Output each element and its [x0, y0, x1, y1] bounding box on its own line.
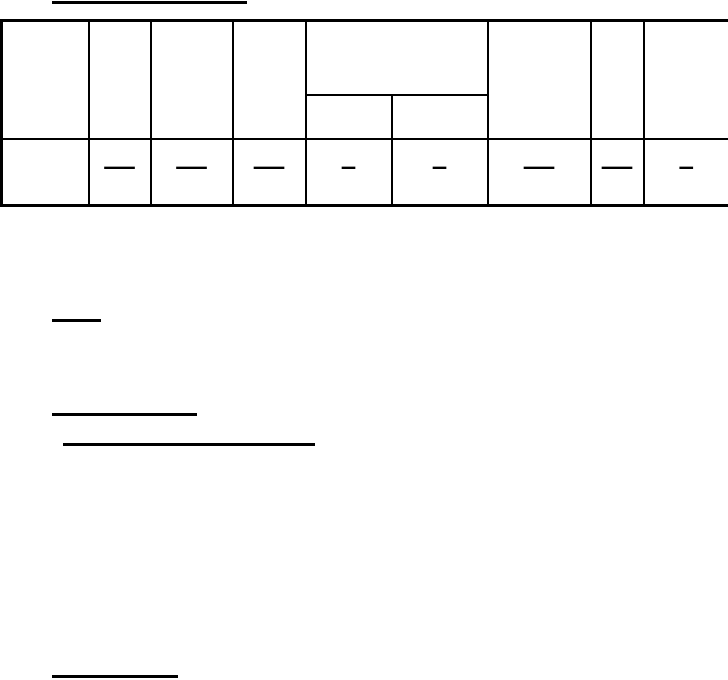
header-cell-col7: [591, 21, 644, 139]
header-cell-col6: [488, 21, 591, 139]
data-cell-col8: –: [644, 139, 728, 206]
table-body: — — — – – — — –: [2, 139, 728, 206]
header-row-1: [2, 21, 728, 95]
underline-rule: [52, 319, 101, 322]
data-table: — — — – – — — –: [0, 19, 728, 207]
data-cell-col3: —: [151, 139, 233, 206]
underline-rule: [52, 675, 178, 678]
data-cell-col2: —: [89, 139, 151, 206]
data-cell-col4: —: [233, 139, 306, 206]
document-page: — — — – – — — –: [0, 0, 728, 680]
header-cell-col3: [151, 21, 233, 139]
header-cell-col8: [644, 21, 728, 139]
header-cell-col4: [233, 21, 306, 139]
header-cell-col2: [89, 21, 151, 139]
table-row: — — — – – — — –: [2, 139, 728, 206]
data-cell-col7: —: [591, 139, 644, 206]
table-header: [2, 21, 728, 139]
header-cell-col1: [2, 21, 89, 139]
header-cell-col5b: [392, 95, 488, 139]
data-cell-col6: —: [488, 139, 591, 206]
title-underline-rule: [52, 1, 247, 4]
header-cell-col5-group: [306, 21, 488, 95]
data-cell-col5b: –: [392, 139, 488, 206]
header-cell-col5a: [306, 95, 392, 139]
data-cell-col1: [2, 139, 89, 206]
underline-rule: [63, 443, 315, 446]
data-cell-col5a: –: [306, 139, 392, 206]
underline-rule: [52, 413, 197, 416]
